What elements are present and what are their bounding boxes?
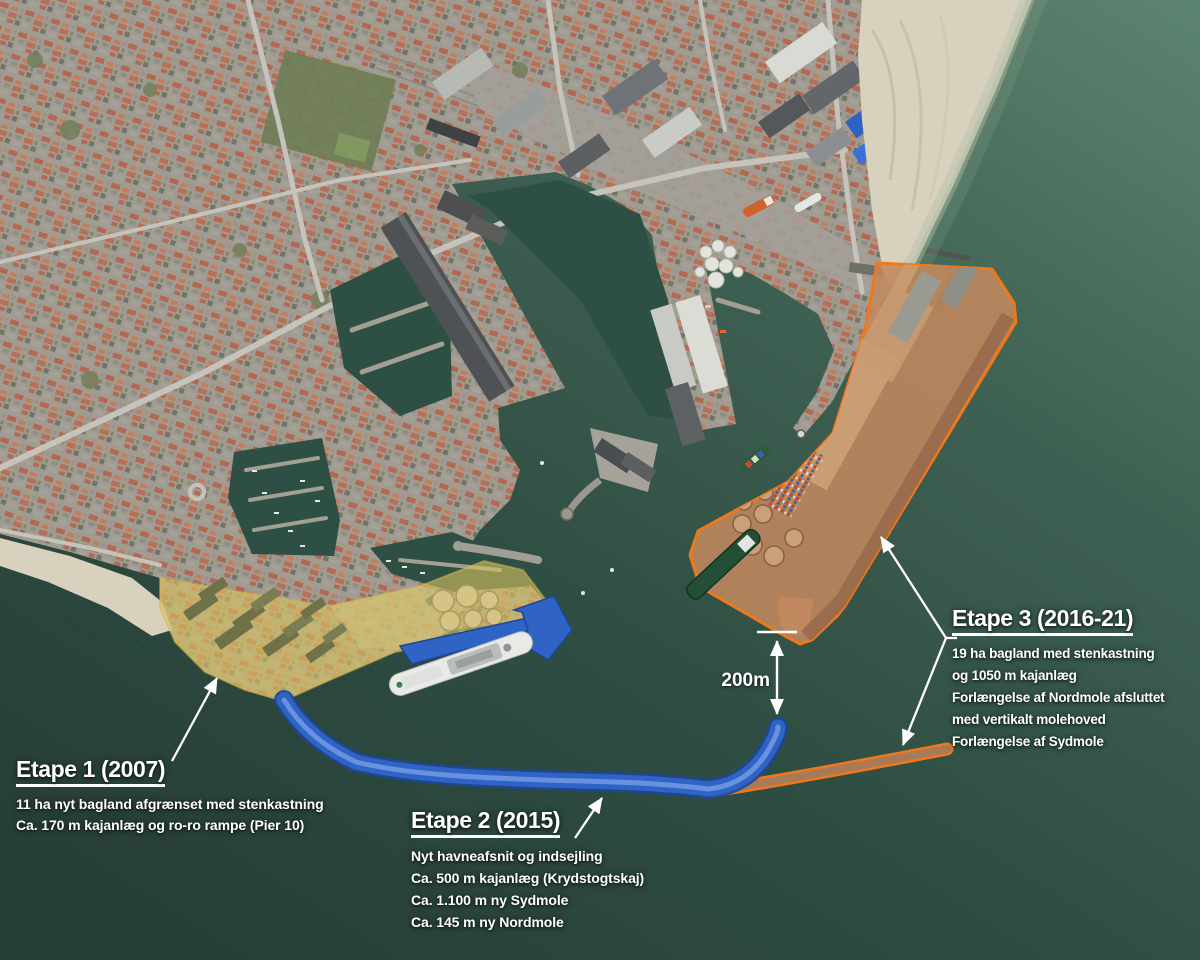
etape1-line: Ca. 170 m kajanlæg og ro-ro rampe (Pier …	[16, 815, 324, 836]
etape1-line: 11 ha nyt bagland afgrænset med stenkast…	[16, 794, 324, 815]
etape1-label: Etape 1 (2007) 11 ha nyt bagland afgræns…	[16, 757, 324, 836]
etape2-line: Ca. 1.100 m ny Sydmole	[411, 889, 644, 911]
etape3-label: Etape 3 (2016-21) 19 ha bagland med sten…	[952, 606, 1164, 753]
etape2-title: Etape 2 (2015)	[411, 808, 560, 838]
etape2-line: Ca. 500 m kajanlæg (Krydstogtskaj)	[411, 867, 644, 889]
etape3-title: Etape 3 (2016-21)	[952, 606, 1133, 636]
harbor-expansion-map: Etape 1 (2007) 11 ha nyt bagland afgræns…	[0, 0, 1200, 960]
etape2-line: Nyt havneafsnit og indsejling	[411, 845, 644, 867]
measurement-label: 200m	[688, 670, 770, 692]
etape1-title: Etape 1 (2007)	[16, 757, 165, 787]
etape3-line: Forlængelse af Sydmole	[952, 731, 1164, 753]
etape3-line: Forlængelse af Nordmole afsluttet	[952, 687, 1164, 709]
etape2-label: Etape 2 (2015) Nyt havneafsnit og indsej…	[411, 808, 644, 933]
etape3-line: og 1050 m kajanlæg	[952, 665, 1164, 687]
etape3-line: med vertikalt molehoved	[952, 709, 1164, 731]
etape2-line: Ca. 145 m ny Nordmole	[411, 911, 644, 933]
etape3-line: 19 ha bagland med stenkastning	[952, 643, 1164, 665]
